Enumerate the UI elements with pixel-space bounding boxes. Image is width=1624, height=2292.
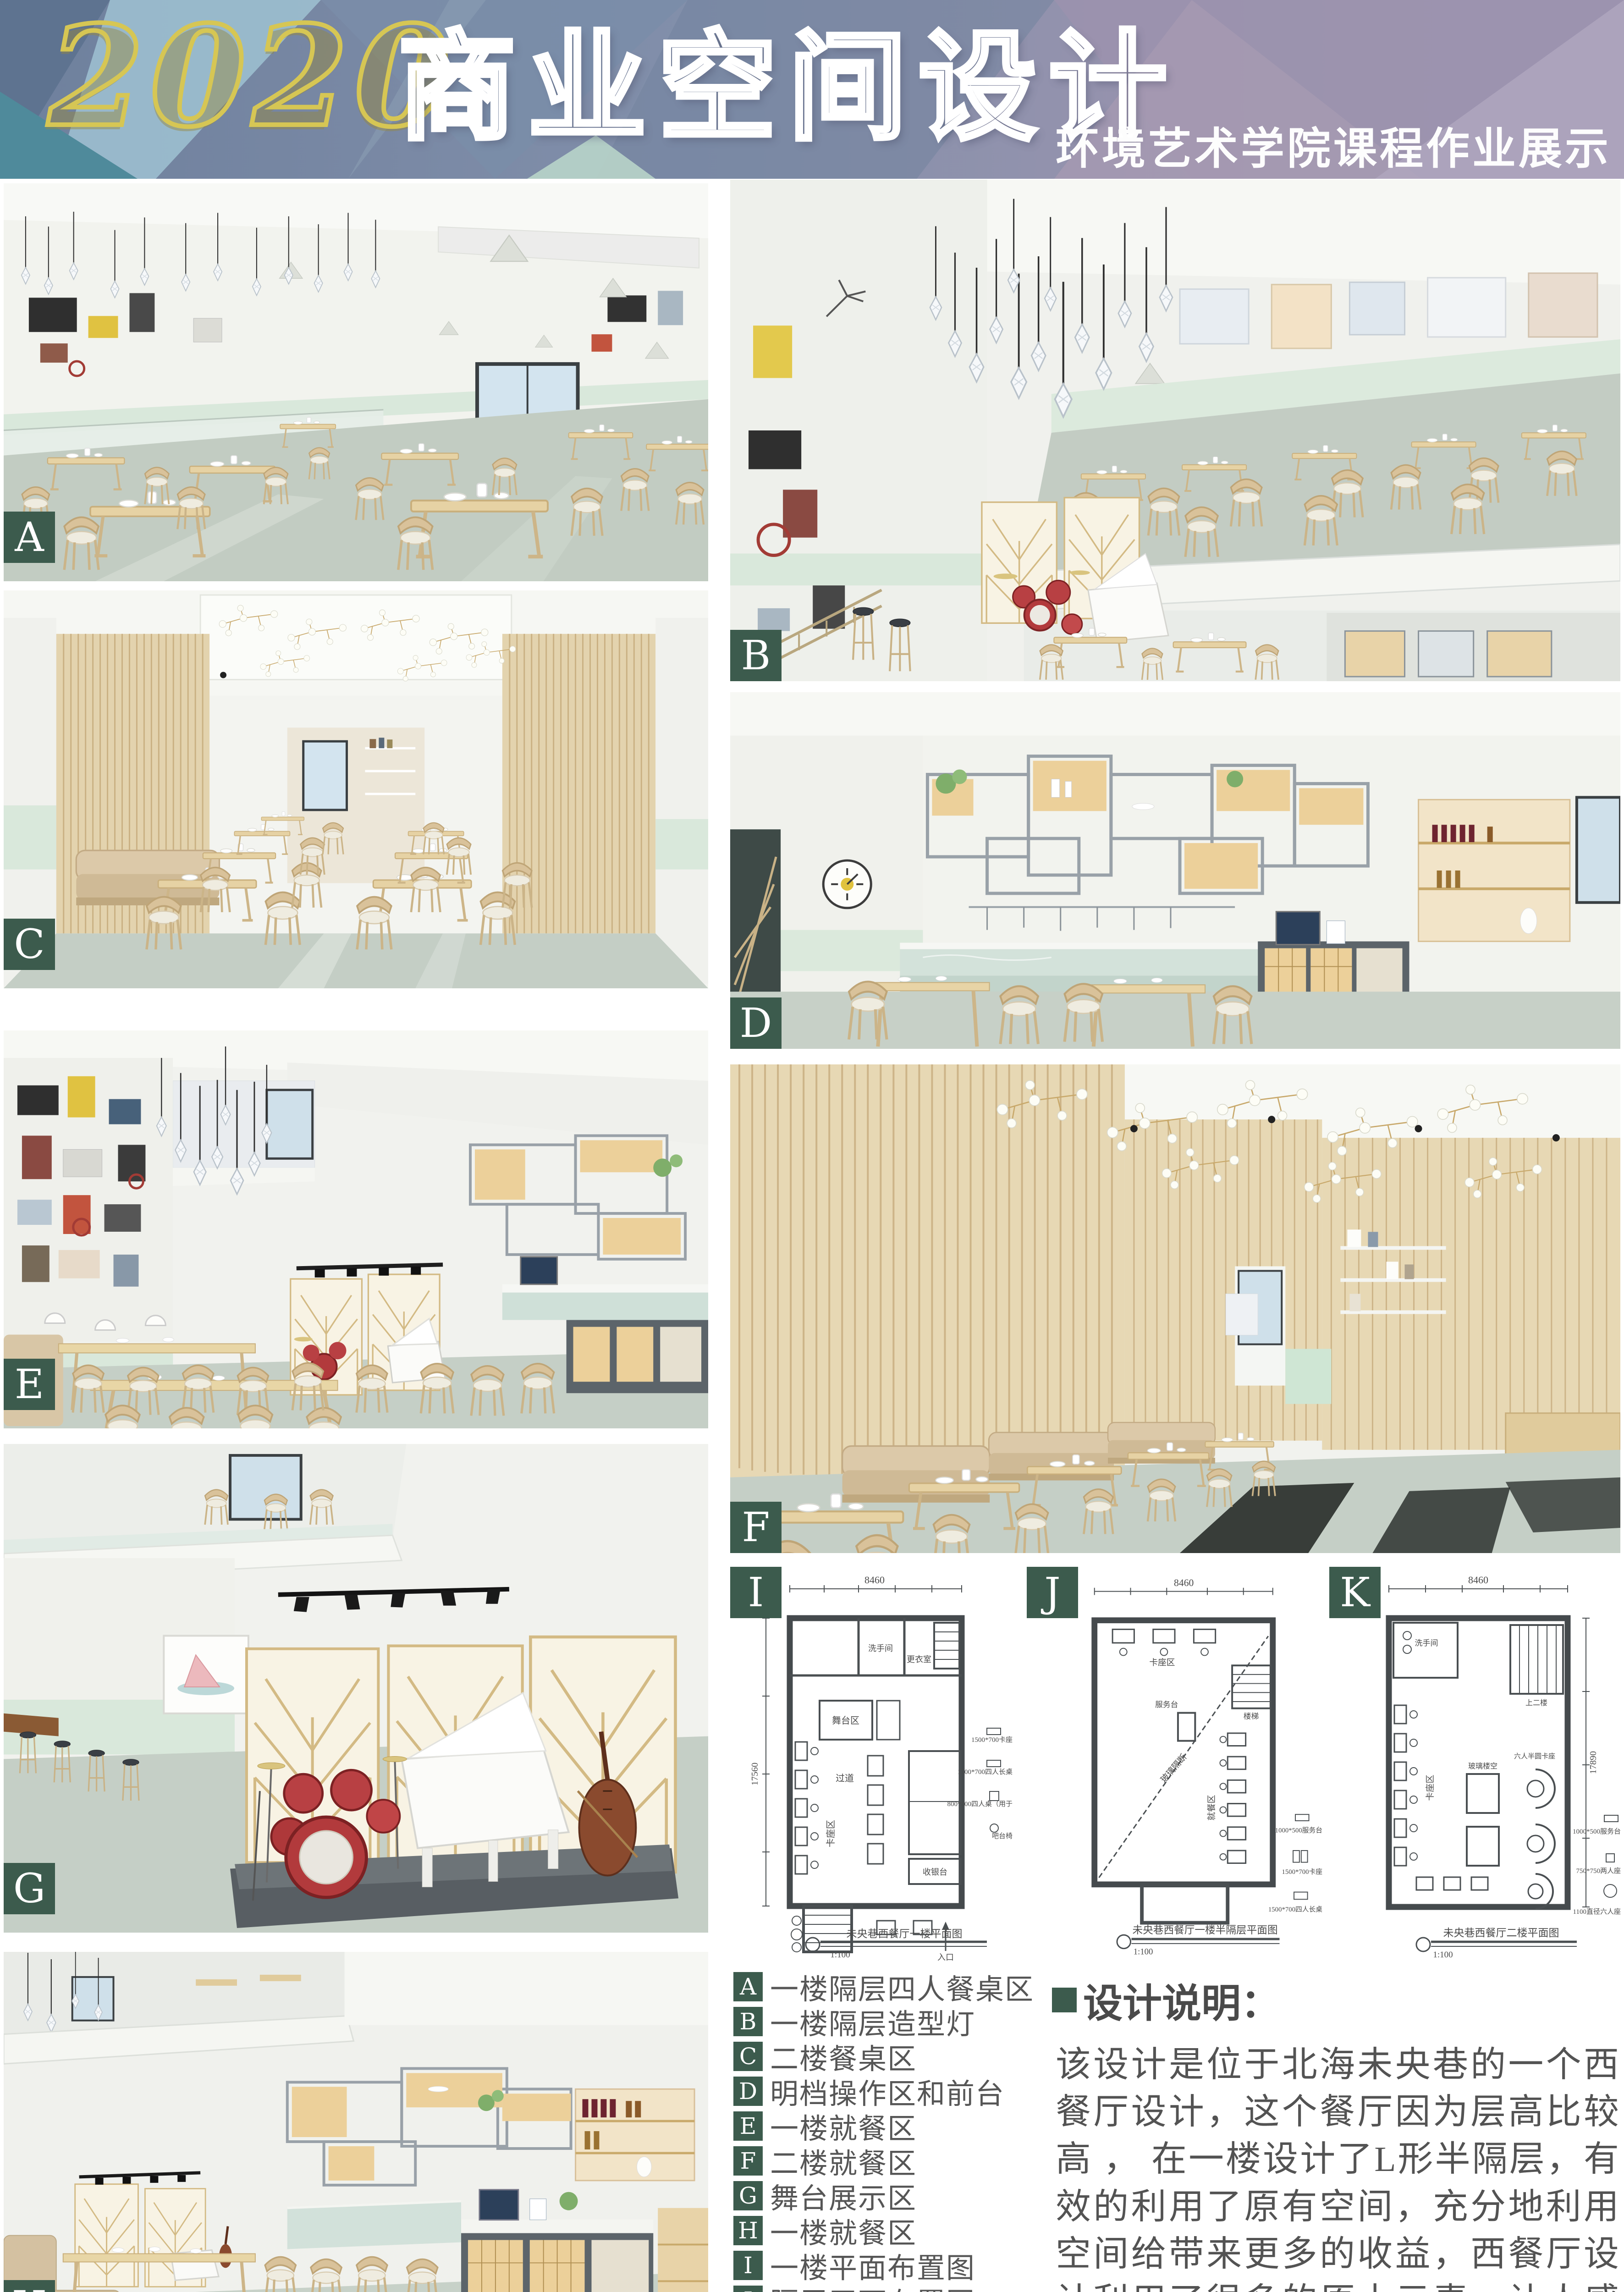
legend-row: D明档操作区和前台 bbox=[733, 2074, 1050, 2109]
plan-dim-top: 8460 bbox=[864, 1574, 885, 1586]
poster-header: 2020 商业空间设计 环境艺术学院课程作业展示 bbox=[0, 0, 1624, 179]
plan-room-label: 洗手间 bbox=[868, 1644, 893, 1653]
photo-letter: B bbox=[741, 635, 771, 676]
design-description-title: 设计说明： bbox=[1083, 1971, 1280, 2028]
photo-label-badge: B bbox=[730, 630, 782, 681]
render-h-illustration bbox=[4, 1952, 708, 2292]
render-g-stage-display: G bbox=[4, 1444, 708, 1933]
plan-title-mark-icon bbox=[1117, 1935, 1280, 1949]
plan-scale: 1:100 bbox=[1134, 1947, 1153, 1956]
legend-row: J隔层平面布置图 bbox=[733, 2283, 1050, 2292]
plan-room-label: 六人半圆卡座 bbox=[1514, 1752, 1555, 1760]
plan-dim-side: 17890 bbox=[1588, 1751, 1598, 1774]
render-a-illustration bbox=[4, 183, 708, 581]
poster-subtitle: 环境艺术学院课程作业展示 bbox=[1056, 114, 1611, 176]
legend-row: F二楼就餐区 bbox=[733, 2143, 1050, 2178]
plan-scale: 1:100 bbox=[830, 1950, 850, 1960]
plan-title-mark-icon bbox=[806, 1938, 987, 1951]
render-e-first-floor-dining: E bbox=[4, 1030, 708, 1428]
plan-letter: I bbox=[748, 1572, 764, 1613]
photo-letter: A bbox=[15, 517, 44, 557]
design-description-body: 该设计是位于北海未央巷的一个西餐厅设计，这个餐厅因为层高比较高 ， 在一楼设计了… bbox=[1052, 2041, 1620, 2292]
legend-key-badge: H bbox=[733, 2216, 763, 2245]
plan-room-label: 洗手间 bbox=[1415, 1639, 1438, 1647]
plan-label-badge: I bbox=[730, 1567, 782, 1618]
year-title: 2020 bbox=[48, 0, 457, 157]
plan-dim-top: 8460 bbox=[1468, 1574, 1488, 1586]
photo-label-badge: A bbox=[4, 512, 55, 563]
plan-label-badge: J bbox=[1027, 1567, 1078, 1618]
plan-room-label: 玻璃楼空 bbox=[1468, 1762, 1497, 1770]
photo-label-badge: C bbox=[4, 919, 55, 970]
photo-label-badge: E bbox=[4, 1359, 55, 1410]
legend-row: G舞台展示区 bbox=[733, 2178, 1050, 2213]
legend-key-badge: B bbox=[733, 2007, 763, 2036]
render-b-illustration bbox=[730, 180, 1620, 681]
legend-text: 隔层平面布置图 bbox=[770, 2280, 975, 2292]
photo-letter: F bbox=[742, 1507, 770, 1548]
plan-note: 1500*700卡座 bbox=[1282, 1868, 1322, 1876]
plan-room-label: 舞台区 bbox=[832, 1715, 859, 1726]
render-d-illustration bbox=[730, 692, 1620, 1049]
plan-room-label: 卡座区 bbox=[826, 1820, 836, 1847]
plan-room-label: 收银台 bbox=[923, 1868, 947, 1877]
render-h-first-floor-dining: H bbox=[4, 1952, 708, 2292]
render-d-open-kitchen-front-desk: D bbox=[730, 692, 1620, 1049]
legend-row: E一楼就餐区 bbox=[733, 2109, 1050, 2143]
render-c-illustration bbox=[4, 590, 708, 988]
plan-title-mark-icon bbox=[1416, 1938, 1577, 1951]
legend-key-badge: D bbox=[733, 2077, 763, 2106]
floorplan-mezzanine: 8460 卡座区 服务台 玻璃隔断 就餐区 楼梯 未央巷西餐厅一楼半隔层平面图 … bbox=[1027, 1559, 1325, 1962]
plan-room-label: 更衣室 bbox=[907, 1655, 931, 1664]
legend-row: H一楼就餐区 bbox=[733, 2213, 1050, 2248]
photo-label-badge: H bbox=[4, 2280, 55, 2292]
design-description: 设计说明： 该设计是位于北海未央巷的一个西餐厅设计，这个餐厅因为层高比较高 ， … bbox=[1052, 1971, 1620, 2292]
plan-note: 750*750两人座 bbox=[1576, 1867, 1621, 1875]
legend-key-badge: I bbox=[733, 2251, 763, 2280]
render-g-illustration bbox=[4, 1444, 708, 1933]
floorplan-k-drawing: 8460 17890 洗手间 卡座区 玻璃楼空 六人半圆卡座 上二楼 未央巷西餐… bbox=[1329, 1559, 1623, 1962]
plan-dim-top: 8460 bbox=[1174, 1577, 1194, 1588]
plan-room-label: 卡座区 bbox=[1149, 1658, 1175, 1668]
floorplan-first-floor: 8460 17560 洗手间 更衣室 舞台区 过道 卡座区 收银台 入口 未央巷… bbox=[730, 1559, 1014, 1962]
render-b-mezzanine-feature-lights: B bbox=[730, 180, 1620, 681]
legend-key-badge: E bbox=[733, 2111, 763, 2141]
photo-letter: D bbox=[740, 1003, 772, 1043]
green-square-bullet-icon bbox=[1052, 1988, 1077, 2012]
plan-note: 1100直径六人座 bbox=[1573, 1908, 1621, 1916]
plan-note: 1500*700四人长桌 bbox=[958, 1768, 1013, 1776]
legend-key-badge: J bbox=[733, 2286, 763, 2292]
plan-note: 1000*500服务台 bbox=[1275, 1827, 1322, 1835]
design-description-heading: 设计说明： bbox=[1052, 1971, 1620, 2028]
plan-dim-side: 17560 bbox=[750, 1763, 760, 1785]
plan-note: 800*800四人桌（用于 bbox=[947, 1800, 1013, 1808]
render-c-second-floor-dining: C bbox=[4, 590, 708, 988]
poster-page: 2020 商业空间设计 环境艺术学院课程作业展示 bbox=[0, 0, 1624, 2292]
render-f-second-floor-dining: F bbox=[730, 1064, 1620, 1553]
plan-note: 1500*700四人长桌 bbox=[1268, 1906, 1322, 1913]
legend-row: A一楼隔层四人餐桌区 bbox=[733, 1969, 1050, 2004]
photo-label-badge: F bbox=[730, 1502, 782, 1553]
photo-legend-list: A一楼隔层四人餐桌区 B一楼隔层造型灯 C二楼餐桌区 D明档操作区和前台 E一楼… bbox=[733, 1969, 1050, 2292]
legend-key-badge: F bbox=[733, 2146, 763, 2176]
photo-letter: C bbox=[14, 924, 44, 964]
plan-room-label: 卡座区 bbox=[1425, 1774, 1435, 1801]
legend-key-badge: G bbox=[733, 2181, 763, 2210]
plan-letter: K bbox=[1340, 1572, 1370, 1613]
plan-room-label: 楼梯 bbox=[1244, 1712, 1259, 1720]
render-a-mezzanine-dining: A bbox=[4, 183, 708, 581]
plan-note: 吧台椅 bbox=[992, 1832, 1013, 1840]
plan-label-badge: K bbox=[1329, 1567, 1381, 1618]
plan-room-label: 服务台 bbox=[1155, 1700, 1178, 1709]
plan-note: 1000*500服务台 bbox=[1573, 1828, 1621, 1835]
plan-caption: 未央巷西餐厅一楼半隔层平面图 bbox=[1133, 1924, 1278, 1936]
plan-caption: 未央巷西餐厅二楼平面图 bbox=[1443, 1927, 1559, 1939]
plan-room-label: 上二楼 bbox=[1525, 1699, 1547, 1707]
legend-row: B一楼隔层造型灯 bbox=[733, 2004, 1050, 2039]
photo-letter: G bbox=[13, 1868, 45, 1909]
plan-letter: J bbox=[1044, 1572, 1060, 1613]
plan-room-label: 就餐区 bbox=[1207, 1795, 1217, 1820]
floorplan-j-drawing: 8460 卡座区 服务台 玻璃隔断 就餐区 楼梯 未央巷西餐厅一楼半隔层平面图 … bbox=[1027, 1559, 1325, 1962]
floorplan-second-floor: 8460 17890 洗手间 卡座区 玻璃楼空 六人半圆卡座 上二楼 未央巷西餐… bbox=[1329, 1559, 1623, 1962]
floorplan-i-drawing: 8460 17560 洗手间 更衣室 舞台区 过道 卡座区 收银台 入口 未央巷… bbox=[730, 1559, 1014, 1962]
legend-row: I一楼平面布置图 bbox=[733, 2248, 1050, 2283]
render-f-illustration bbox=[730, 1064, 1620, 1553]
plan-scale: 1:100 bbox=[1433, 1950, 1453, 1960]
photo-letter: E bbox=[15, 1364, 44, 1405]
photo-label-badge: G bbox=[4, 1863, 55, 1914]
legend-key-badge: A bbox=[733, 1972, 763, 2001]
photo-letter: H bbox=[12, 2286, 47, 2292]
plan-room-label: 过道 bbox=[836, 1773, 854, 1784]
plan-room-label: 入口 bbox=[937, 1953, 954, 1962]
photo-label-badge: D bbox=[730, 997, 782, 1049]
render-e-illustration bbox=[4, 1030, 708, 1428]
legend-key-badge: C bbox=[733, 2042, 763, 2071]
plan-note: 1500*700卡座 bbox=[971, 1736, 1013, 1744]
plan-caption: 未央巷西餐厅一楼平面图 bbox=[847, 1928, 963, 1939]
legend-row: C二楼餐桌区 bbox=[733, 2039, 1050, 2074]
plan-room-label: 玻璃隔断 bbox=[1159, 1752, 1189, 1785]
